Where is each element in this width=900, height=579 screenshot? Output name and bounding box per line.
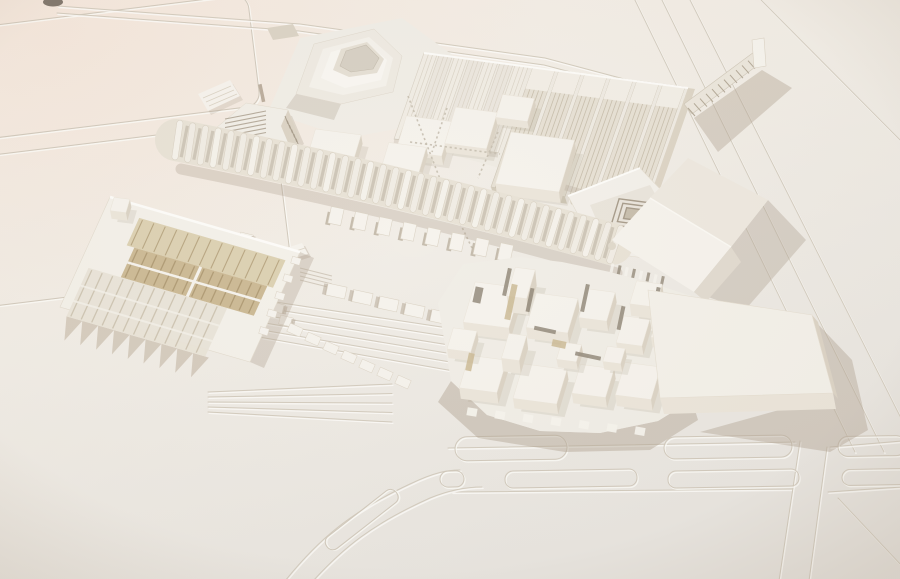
cluster-edge-tooth <box>578 420 589 430</box>
cluster-edge-tooth <box>494 410 505 420</box>
bridge-end-fin <box>752 38 766 68</box>
caterpillar-end-cap <box>608 242 616 250</box>
cluster-edge-tooth <box>466 407 477 417</box>
cluster-edge-tooth <box>522 414 533 424</box>
cluster-edge-tooth <box>606 423 617 433</box>
cluster-edge-tooth <box>634 426 645 436</box>
model-scene <box>0 0 900 579</box>
cluster-edge-tooth <box>550 417 561 427</box>
exhibition-box-6-top <box>496 94 535 121</box>
architectural-model-photograph <box>0 0 900 579</box>
